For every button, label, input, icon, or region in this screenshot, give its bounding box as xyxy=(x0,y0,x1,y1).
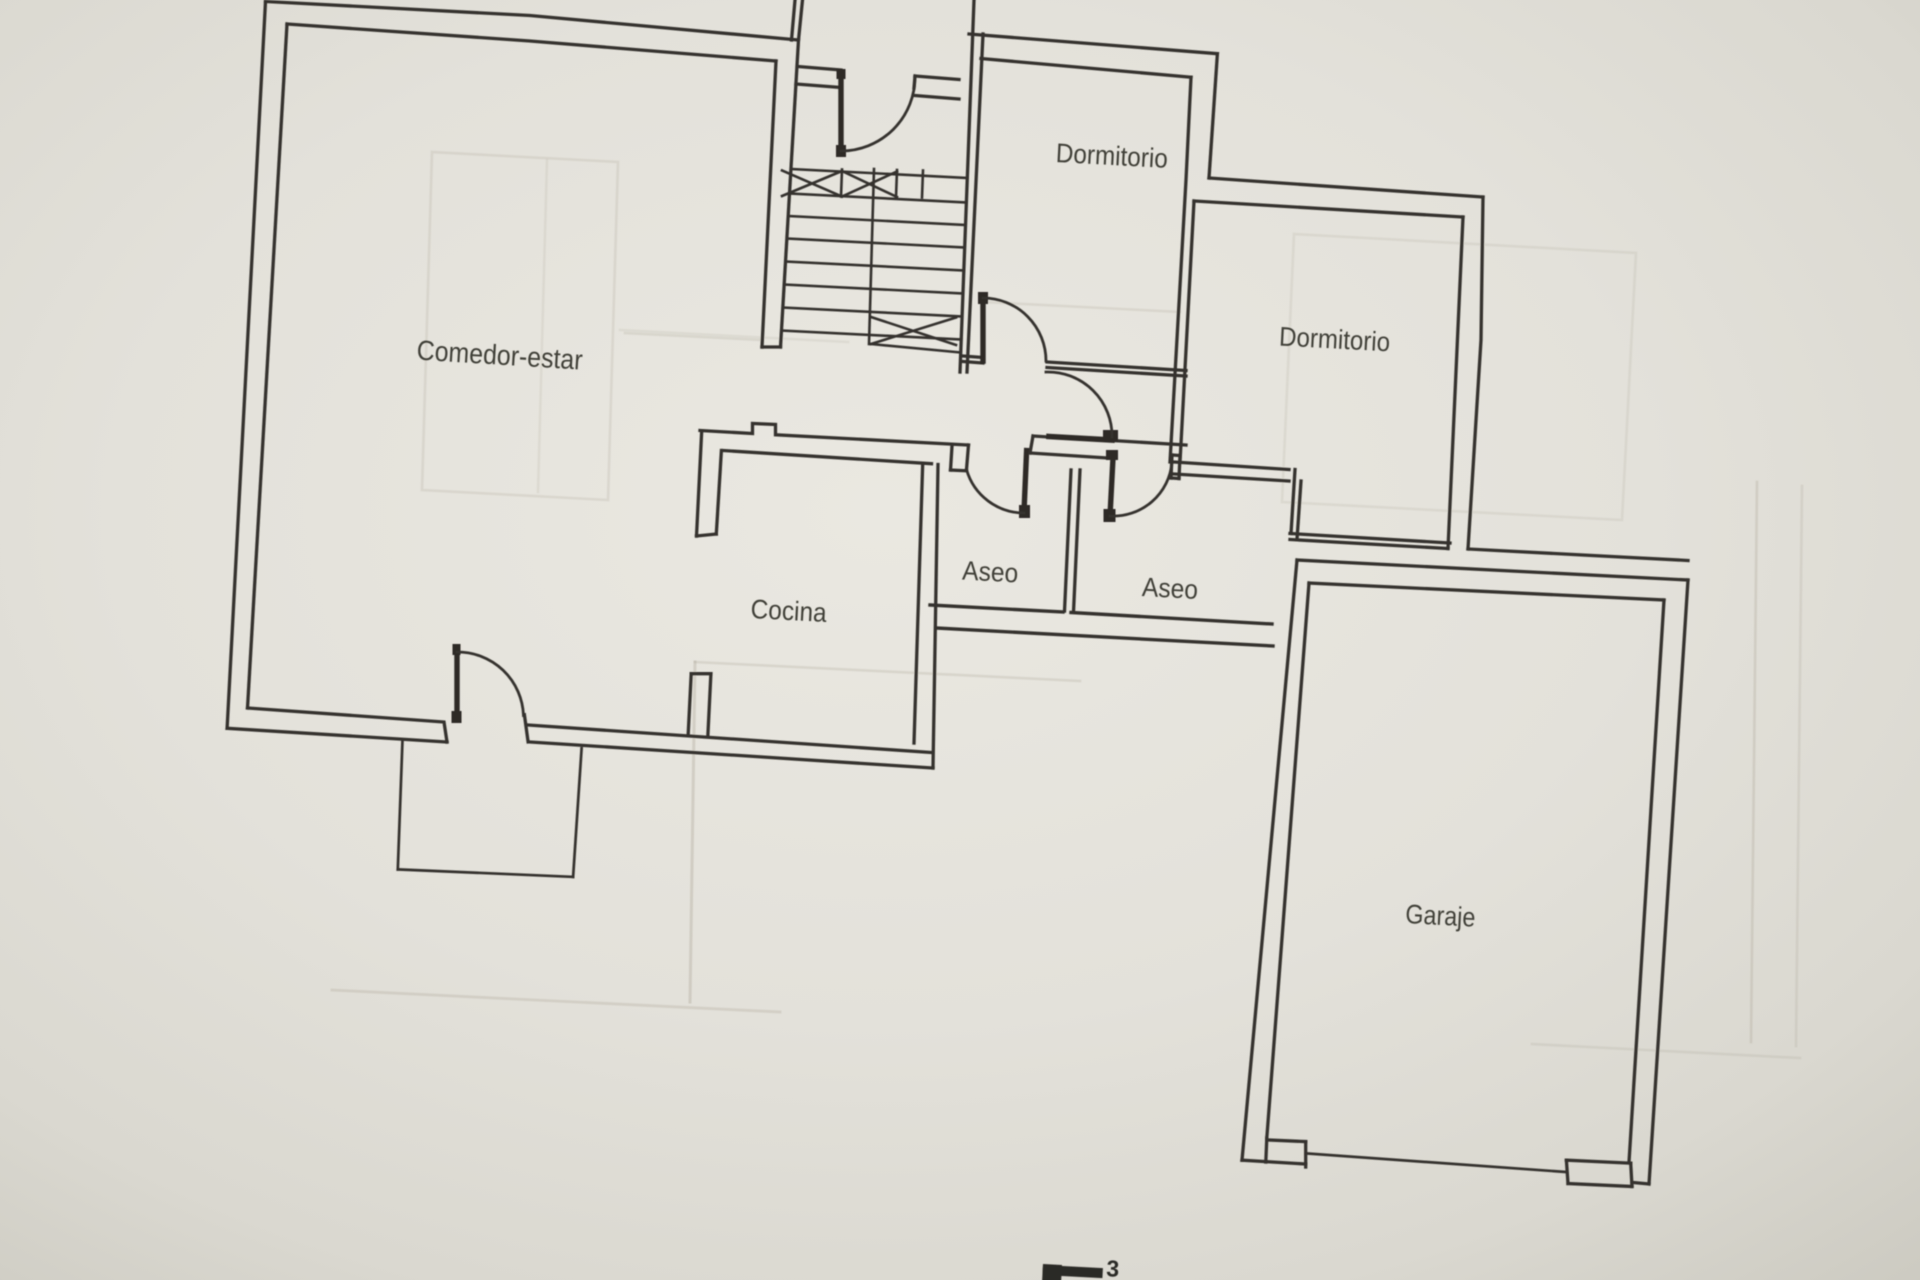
svg-text:Dormitorio: Dormitorio xyxy=(1055,138,1168,174)
svg-text:Garaje: Garaje xyxy=(1405,899,1476,933)
svg-text:Aseo: Aseo xyxy=(962,556,1019,589)
svg-text:3: 3 xyxy=(1106,1255,1120,1280)
svg-text:Dormitorio: Dormitorio xyxy=(1278,322,1390,358)
svg-text:Aseo: Aseo xyxy=(1141,572,1198,605)
svg-text:Cocina: Cocina xyxy=(750,594,828,628)
